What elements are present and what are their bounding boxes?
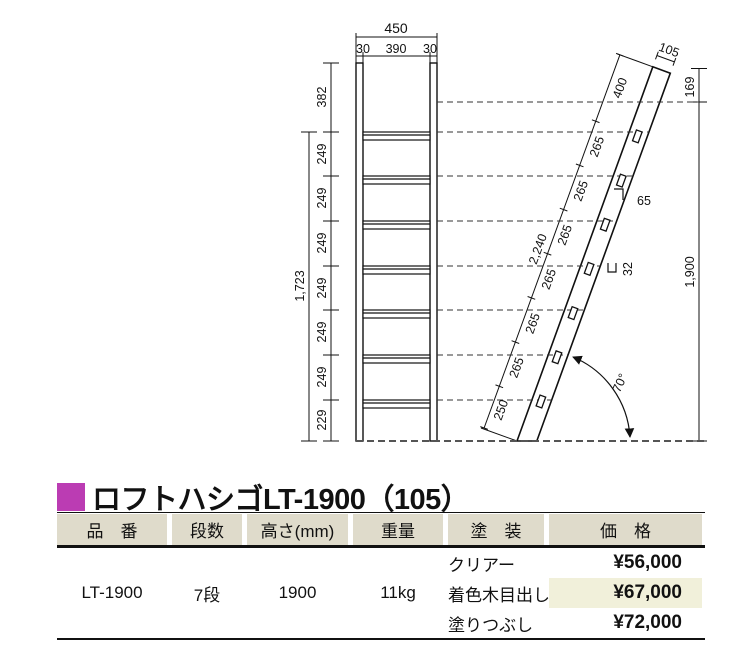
header-price: 価 格 [549, 514, 702, 545]
dim-front-seg-bottom: 229 [315, 410, 329, 431]
dim-front-pitch-3: 249 [315, 233, 329, 254]
dim-front-overall-height: 1,723 [293, 270, 307, 301]
finish-name: 塗りつぶし [448, 608, 544, 638]
dim-side-height: 1,900 [683, 256, 697, 287]
spec-table-header: 品 番 段数 高さ(mm) 重量 塗 装 価 格 [57, 514, 705, 548]
page: 450 30 390 30 382 249 249 249 249 249 24… [0, 0, 745, 661]
finish-price: ¥72,000 [549, 608, 702, 638]
dim-rung-thickness: 32 [621, 262, 635, 276]
value-height: 1900 [247, 548, 348, 638]
header-height: 高さ(mm) [247, 514, 348, 545]
angle-arc [573, 357, 630, 437]
dim-side-top-offset: 169 [683, 77, 697, 98]
dim-angle: 70° [610, 371, 631, 394]
dim-front-total-width: 450 [384, 20, 408, 36]
finish-name: 着色木目出し [448, 578, 544, 608]
value-weight: 11kg [353, 548, 443, 638]
dim-front-rail-left: 30 [356, 42, 370, 56]
value-product-code: LT-1900 [57, 548, 167, 638]
finish-price-highlighted: ¥67,000 [549, 578, 702, 608]
spec-table-body: LT-1900 7段 1900 11kg クリアー ¥56,000 着色木目出し… [57, 548, 705, 638]
dim-front-pitch-5: 249 [315, 322, 329, 343]
dim-front-pitch-1: 249 [315, 144, 329, 165]
header-finish: 塗 装 [448, 514, 544, 545]
technical-drawing: 450 30 390 30 382 249 249 249 249 249 24… [0, 0, 745, 470]
dim-front-pitch-6: 249 [315, 367, 329, 388]
value-steps: 7段 [172, 548, 242, 638]
header-weight: 重量 [353, 514, 443, 545]
dim-side-seg-top: 400 [610, 76, 630, 100]
dim-front-pitch-4: 249 [315, 278, 329, 299]
finish-name: クリアー [448, 548, 544, 578]
dim-side-length: 2,240 [526, 232, 550, 266]
dim-front-inner-width: 390 [386, 42, 407, 56]
dim-front-pitch-2: 249 [315, 188, 329, 209]
spec-table: 品 番 段数 高さ(mm) 重量 塗 装 価 格 LT-1900 7段 1900… [57, 512, 705, 640]
dim-front-seg-top: 382 [315, 87, 329, 108]
title-accent-square [57, 483, 85, 511]
finish-price: ¥56,000 [549, 548, 702, 578]
header-product-code: 品 番 [57, 514, 167, 545]
front-view-ladder [356, 63, 437, 441]
dim-rung-depth: 65 [637, 194, 651, 208]
dim-front-rail-right: 30 [423, 42, 437, 56]
header-steps: 段数 [172, 514, 242, 545]
